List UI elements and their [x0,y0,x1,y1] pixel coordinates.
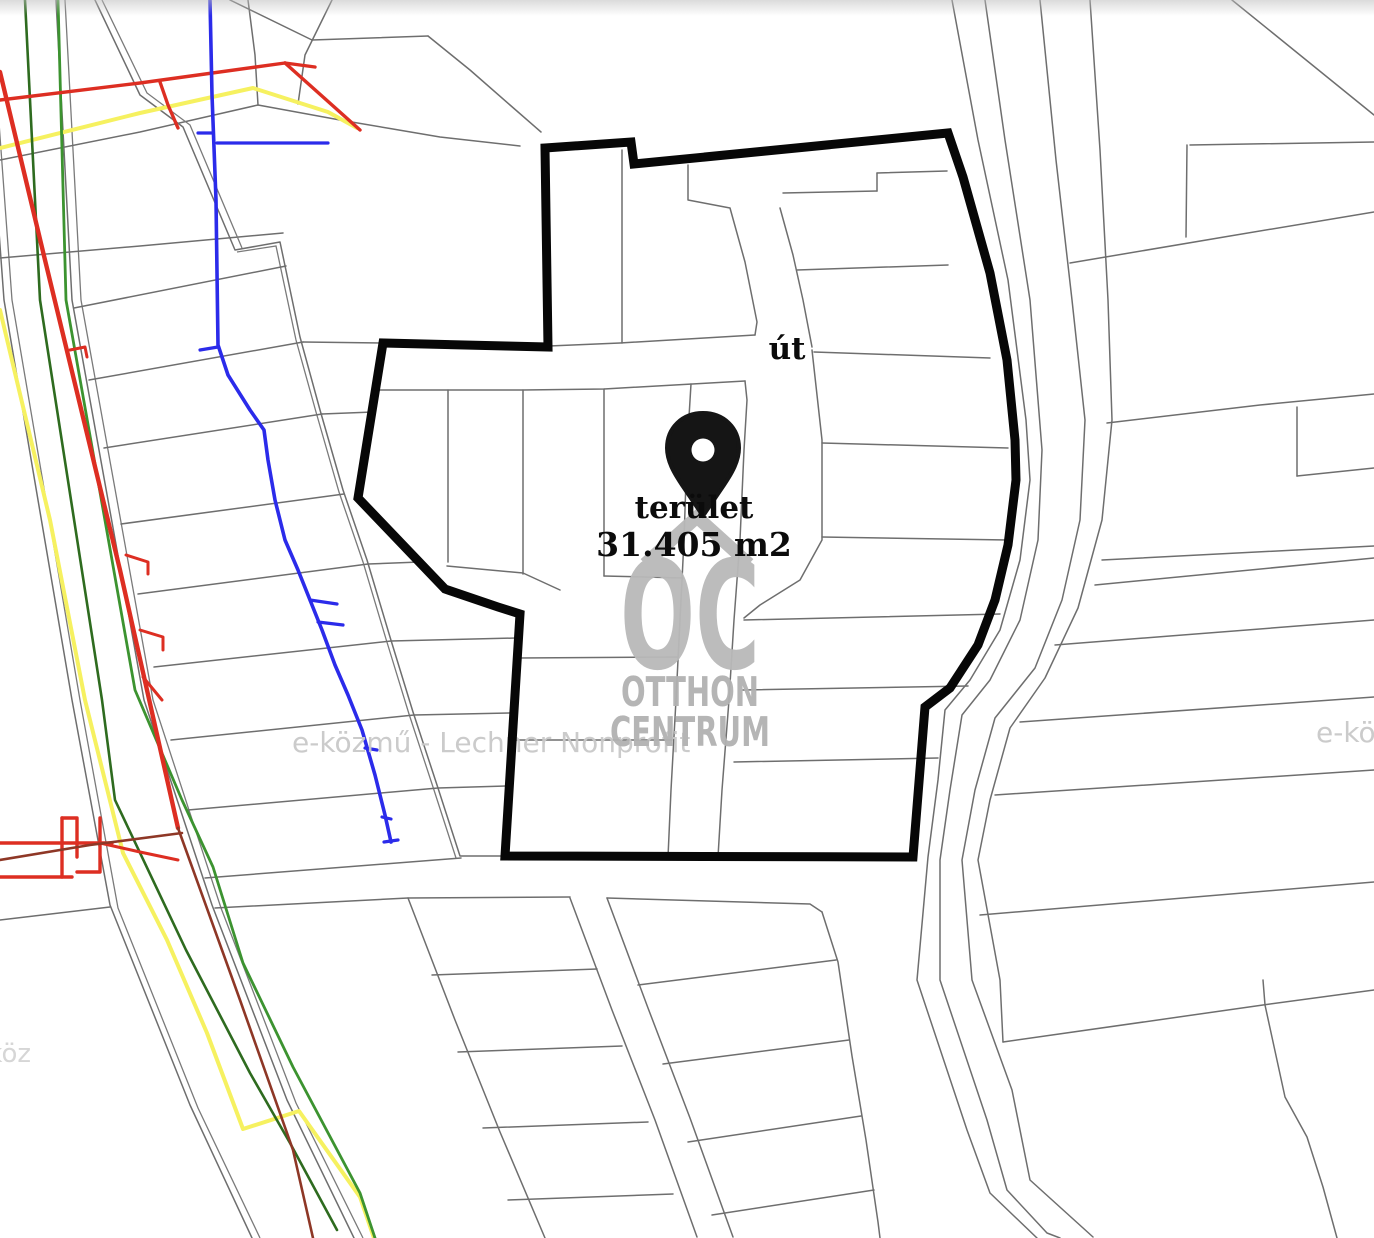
utility-lines [0,0,398,1238]
area-value: 31.405 m2 [596,525,792,564]
watermark-tile-text-right: e-köz [1316,716,1374,749]
road-label: út [769,331,807,367]
sewer-line-green [25,0,375,1238]
logo-word-centrum: CENTRUM [610,708,770,756]
area-caption: terület [635,490,754,526]
watermark-tile-text-left-edge: e-köz [0,1039,31,1069]
cadastral-map-view: e-közmű - Lechner Nonprofit e-köz e-köz … [0,0,1374,1238]
pin-hole [692,439,715,462]
map-canvas[interactable]: e-közmű - Lechner Nonprofit e-köz e-köz … [0,0,1374,1238]
